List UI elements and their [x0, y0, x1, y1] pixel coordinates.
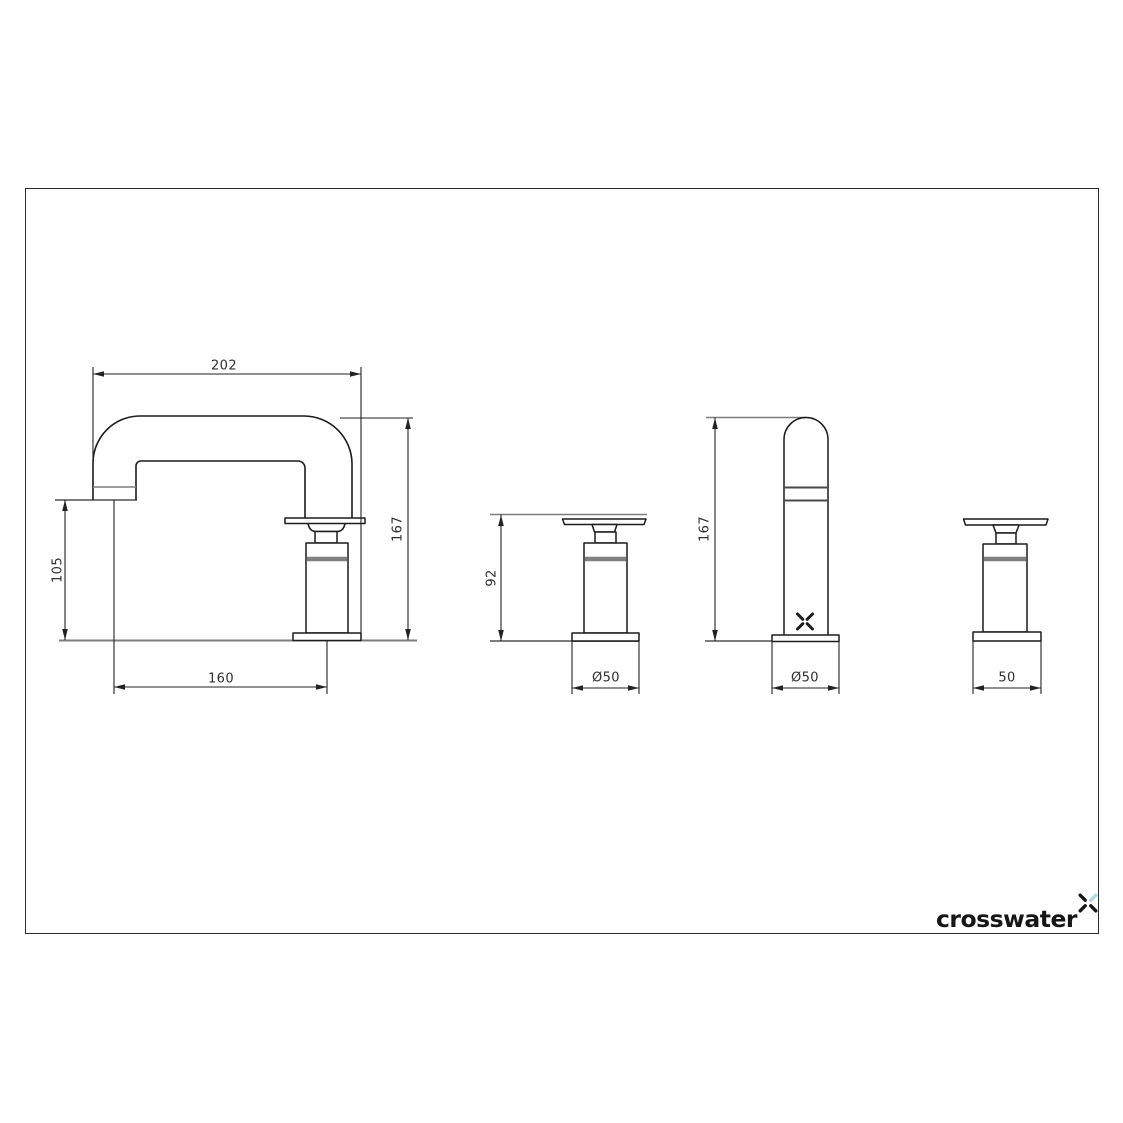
technical-drawing: [0, 0, 1123, 1123]
dim-92-label: 92: [485, 569, 500, 586]
dim-167-side-label: 167: [391, 516, 406, 542]
escutcheon-flange: [285, 518, 365, 524]
drawing-canvas: 202 105 160 167 92 Ø50 167 Ø50 50 crossw…: [0, 0, 1123, 1123]
base-plate: [973, 632, 1041, 641]
dim-160-lines: [114, 500, 327, 694]
base-plate: [293, 633, 361, 641]
handle-hub: [592, 525, 617, 533]
valve-body: [584, 543, 627, 633]
spout-outer-profile: [93, 416, 352, 518]
valve-body: [306, 543, 348, 633]
spout-side-view: [55, 367, 417, 694]
dim-202-label: 202: [211, 359, 237, 374]
cross-handle-bar: [964, 519, 1049, 525]
dim-160-label: 160: [208, 672, 234, 687]
crosswater-x-icon: [1077, 892, 1099, 914]
base-plate: [572, 633, 639, 641]
dim-50-handle-front-label: 50: [998, 671, 1015, 686]
handle-hub: [993, 525, 1019, 533]
spout-inner-profile: [136, 461, 305, 518]
handle-stem: [595, 532, 616, 543]
crosswater-logo-text: crosswater: [936, 907, 1077, 932]
dim-105-label: 105: [51, 557, 66, 583]
dim-167-front-label: 167: [698, 516, 713, 542]
spout-column: [784, 418, 828, 635]
handle-front-view: [964, 519, 1049, 694]
cross-handle-bar: [563, 519, 647, 525]
base-plate: [772, 635, 839, 642]
dim-dia50-spout-label: Ø50: [791, 671, 819, 686]
handle-side-view: [490, 515, 647, 695]
handle-stem: [996, 533, 1016, 544]
valve-stem: [315, 532, 337, 544]
spout-front-view: [705, 418, 839, 695]
valve-dome: [308, 524, 345, 532]
dim-dia50-handle-side-label: Ø50: [592, 671, 620, 686]
